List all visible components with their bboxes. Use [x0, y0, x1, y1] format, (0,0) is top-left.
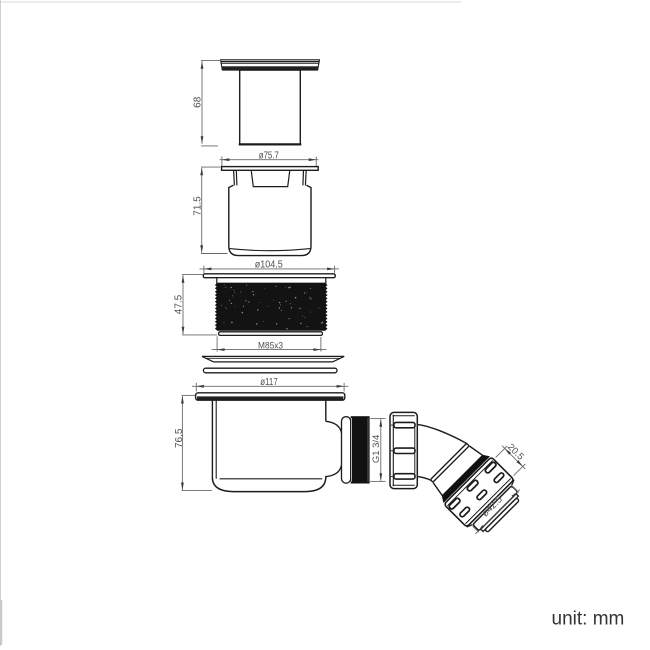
svg-text:76.5: 76.5 — [174, 428, 185, 448]
svg-text:20.5: 20.5 — [505, 442, 526, 463]
svg-text:71.5: 71.5 — [192, 196, 203, 216]
svg-text:unit: mm: unit: mm — [552, 609, 625, 630]
svg-text:68: 68 — [193, 96, 204, 108]
svg-text:G1 3/4: G1 3/4 — [371, 435, 382, 464]
svg-text:47.5: 47.5 — [174, 294, 185, 314]
